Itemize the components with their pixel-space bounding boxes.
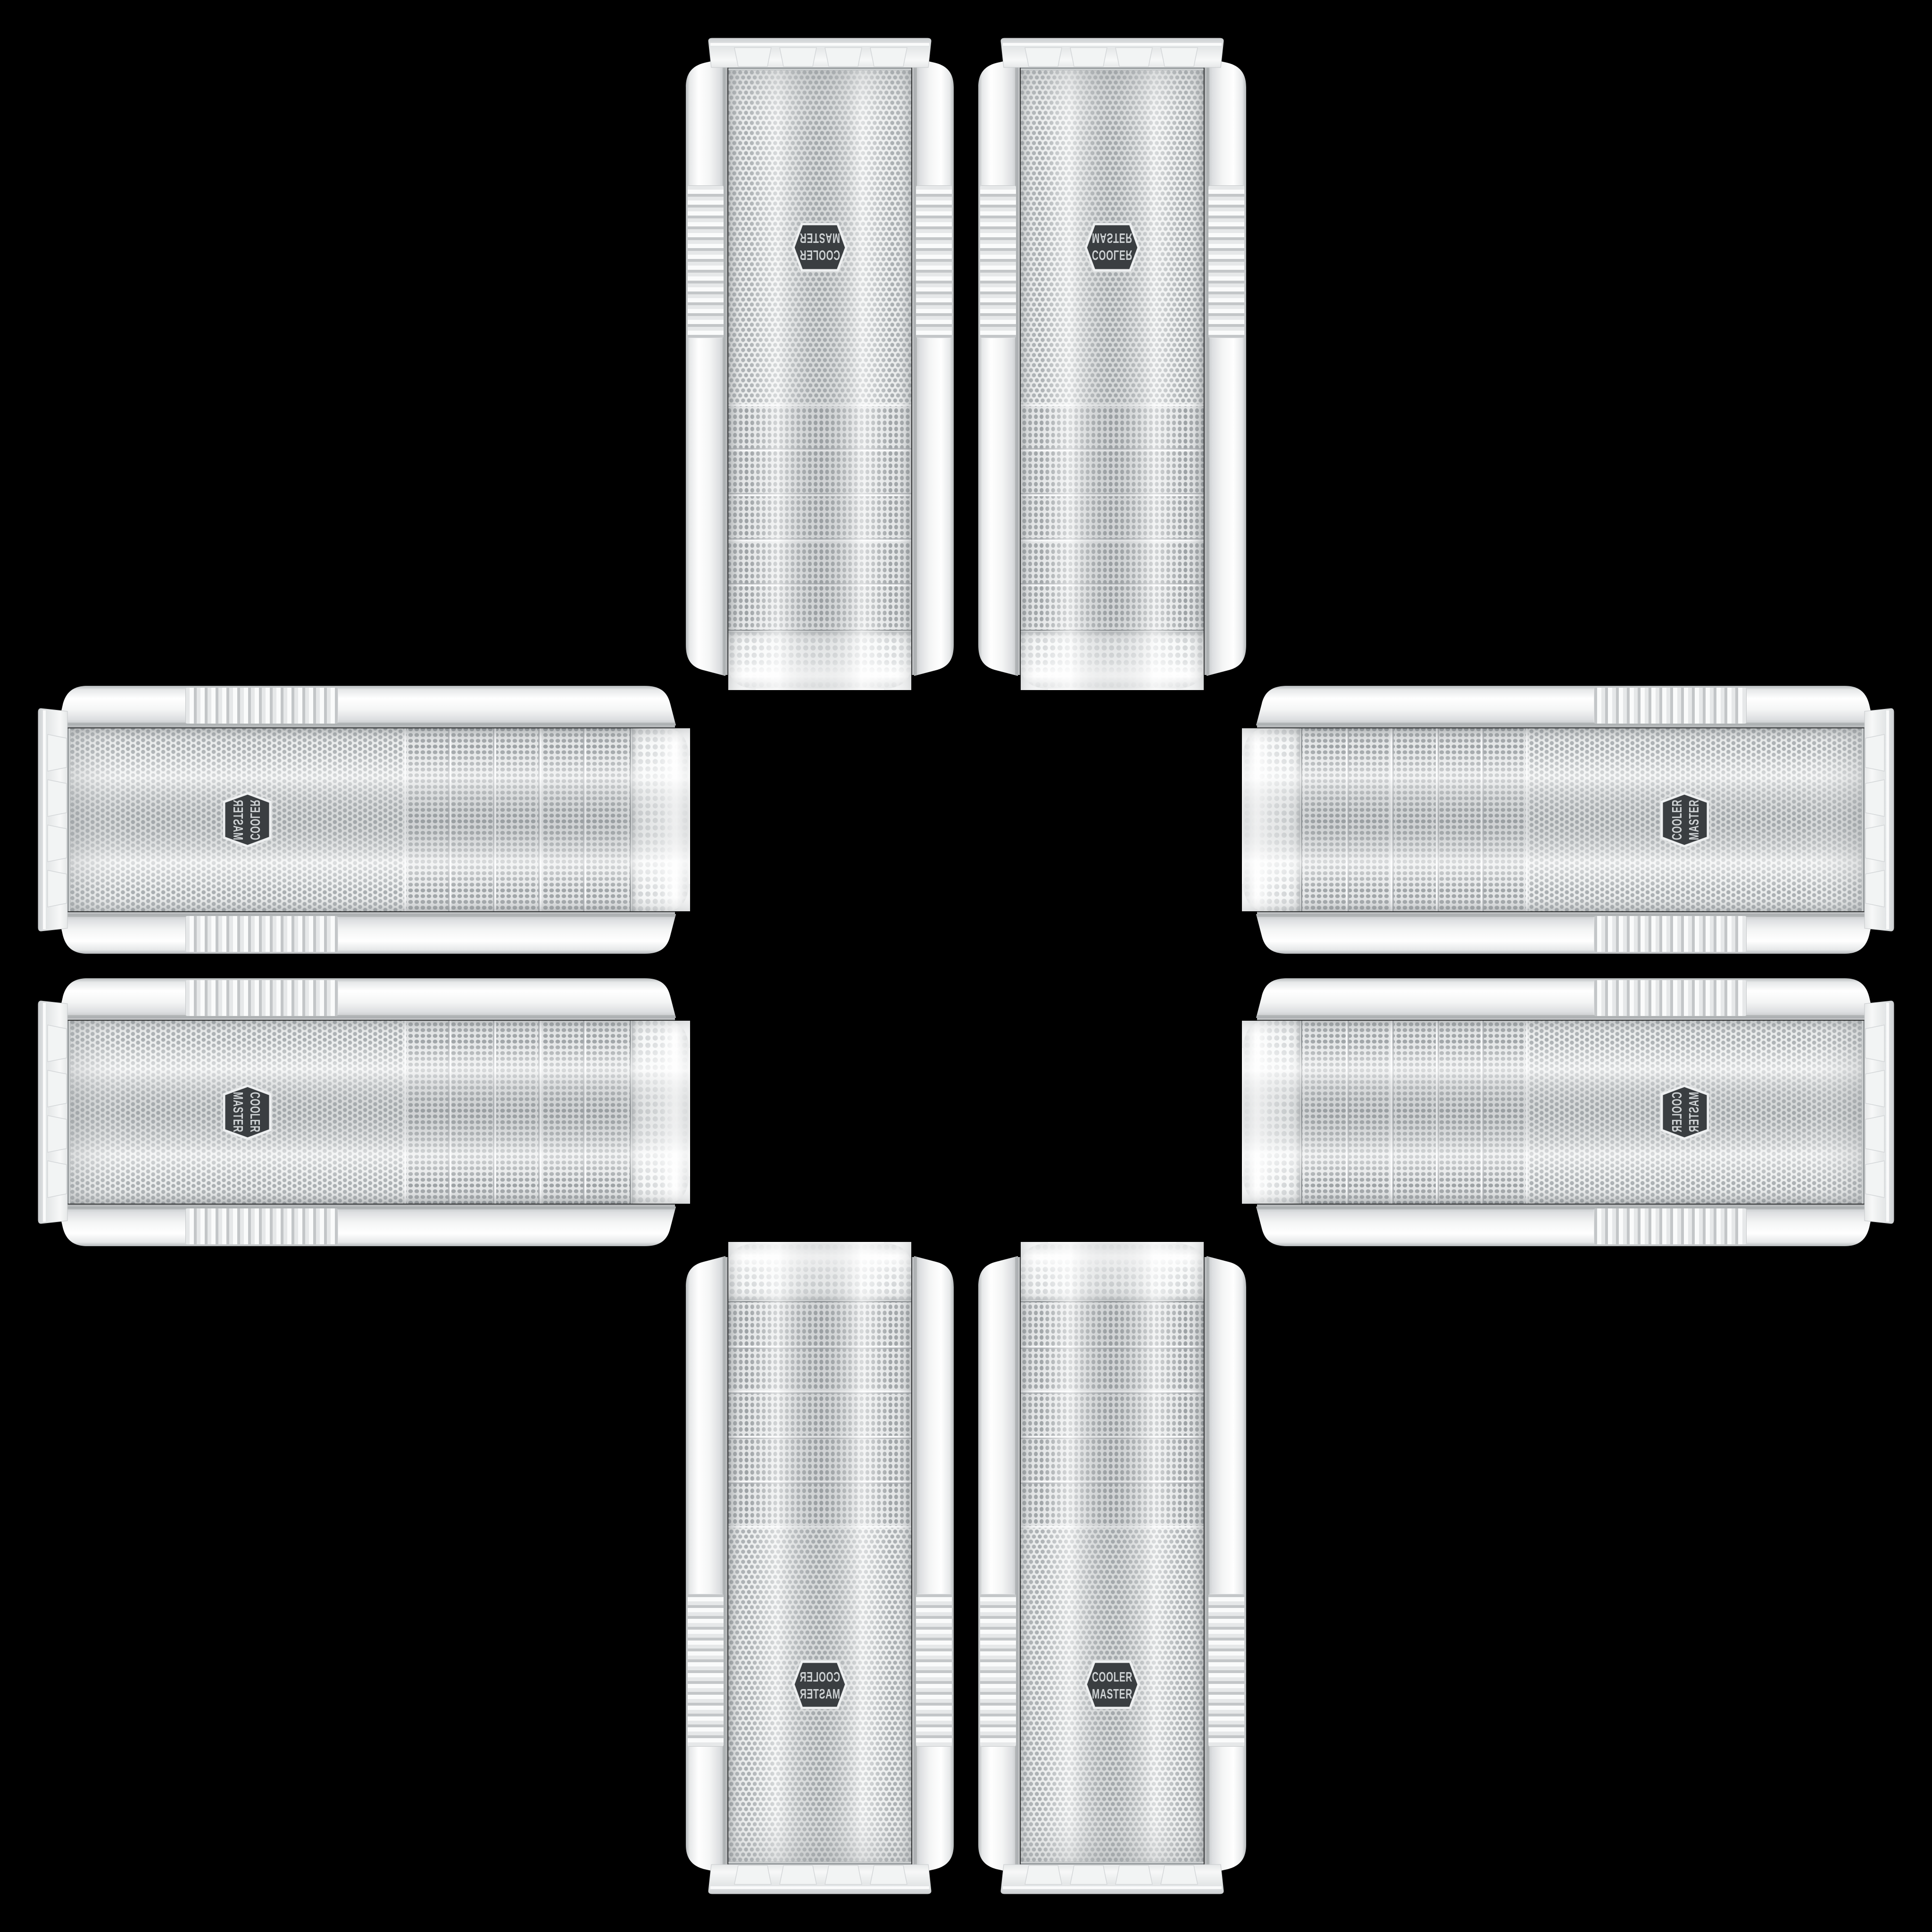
case-right-top [1242,686,1894,954]
scene: COOLER MASTER [0,0,1932,1932]
case-top-right [978,38,1246,690]
case-bottom-left [686,1242,954,1894]
case-top-left [686,38,954,690]
case-right-bottom [1242,978,1894,1246]
case-bottom-right [978,1242,1246,1894]
background [0,0,1932,1932]
case-collage-svg: COOLER MASTER [0,0,1932,1932]
case-left-top [38,686,690,954]
case-left-bottom [38,978,690,1246]
